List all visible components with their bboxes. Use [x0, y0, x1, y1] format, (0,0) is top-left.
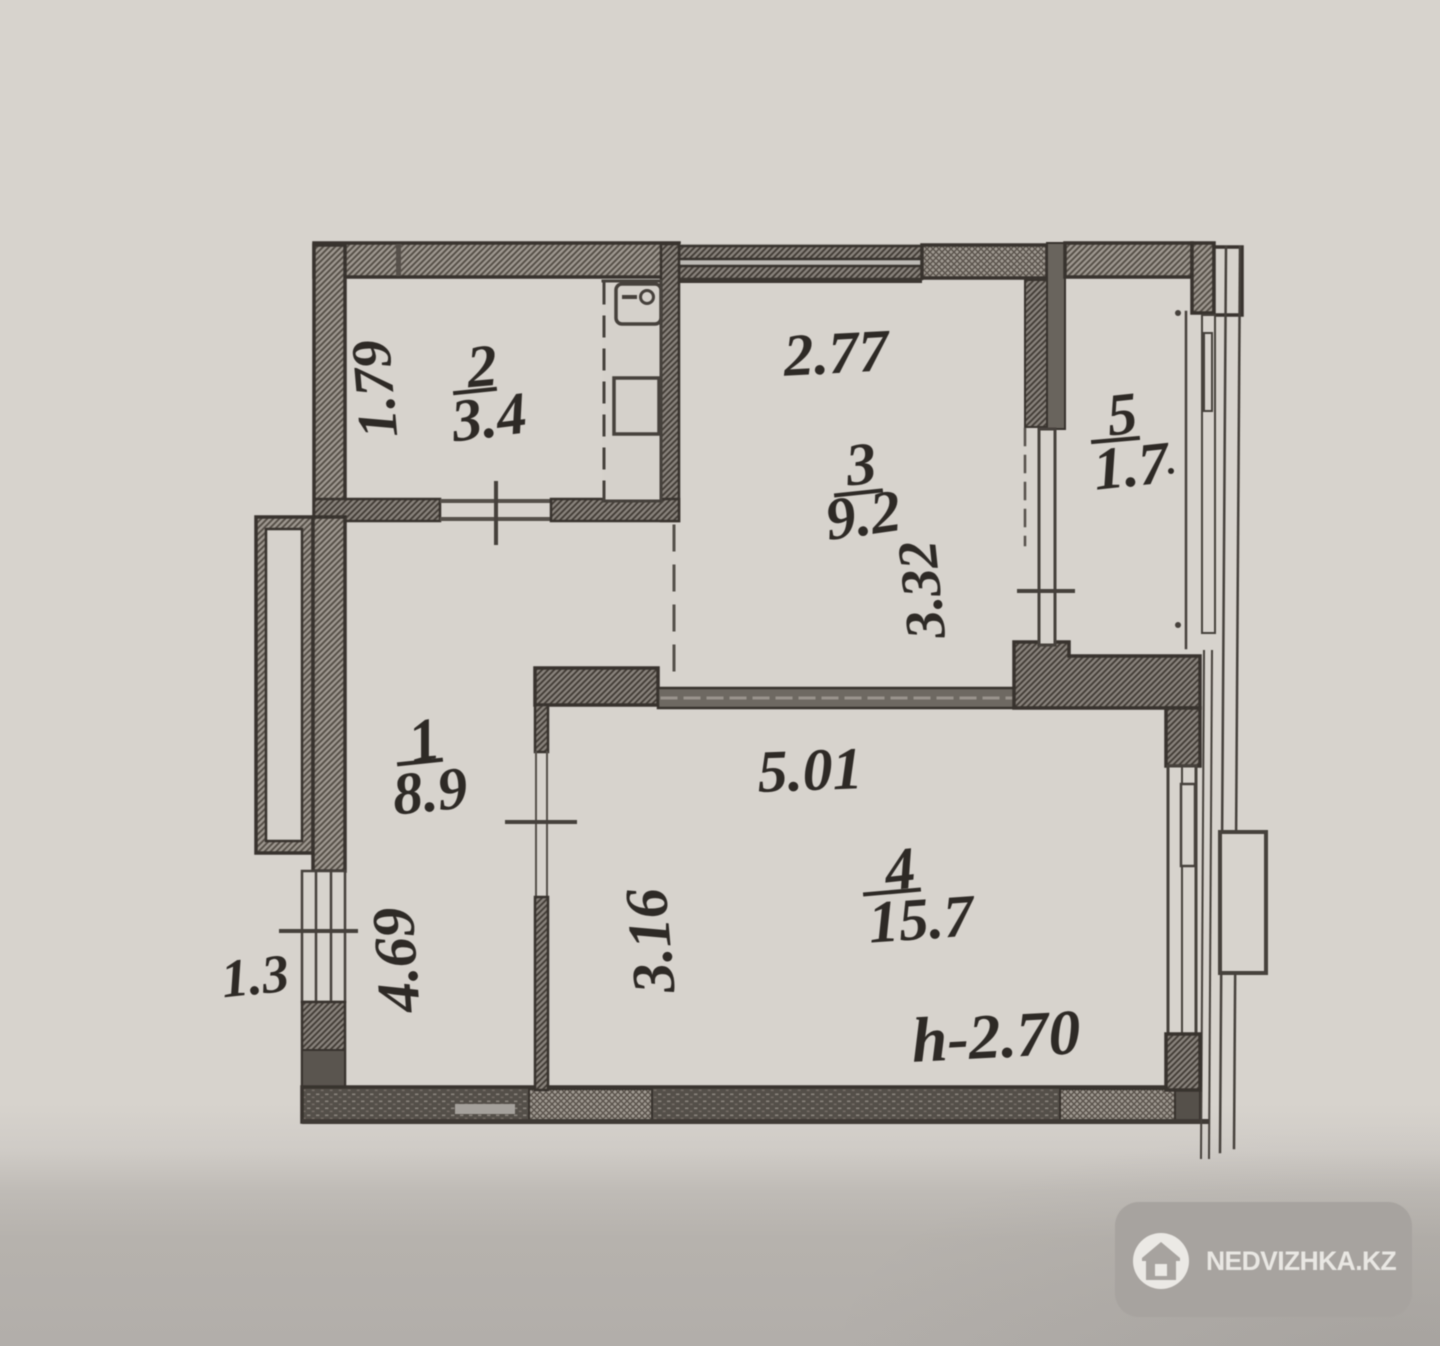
svg-text:1.3: 1.3: [218, 943, 291, 1010]
svg-text:3.32: 3.32: [886, 538, 958, 643]
svg-text:4.69: 4.69: [359, 905, 432, 1015]
svg-text:5.01: 5.01: [756, 735, 863, 805]
svg-text:NEDVIZHKA.KZ: NEDVIZHKA.KZ: [1206, 1246, 1396, 1276]
svg-text:3.16: 3.16: [613, 886, 688, 997]
svg-text:3.4: 3.4: [447, 380, 530, 455]
svg-text:8.9: 8.9: [389, 754, 470, 827]
svg-text:1.79: 1.79: [340, 337, 410, 440]
svg-text:h-2.70: h-2.70: [910, 996, 1082, 1076]
svg-text:15.7: 15.7: [866, 882, 977, 955]
svg-text:2.77: 2.77: [781, 317, 892, 389]
svg-text:9.2: 9.2: [821, 477, 904, 553]
svg-text:1.7: 1.7: [1090, 429, 1173, 503]
